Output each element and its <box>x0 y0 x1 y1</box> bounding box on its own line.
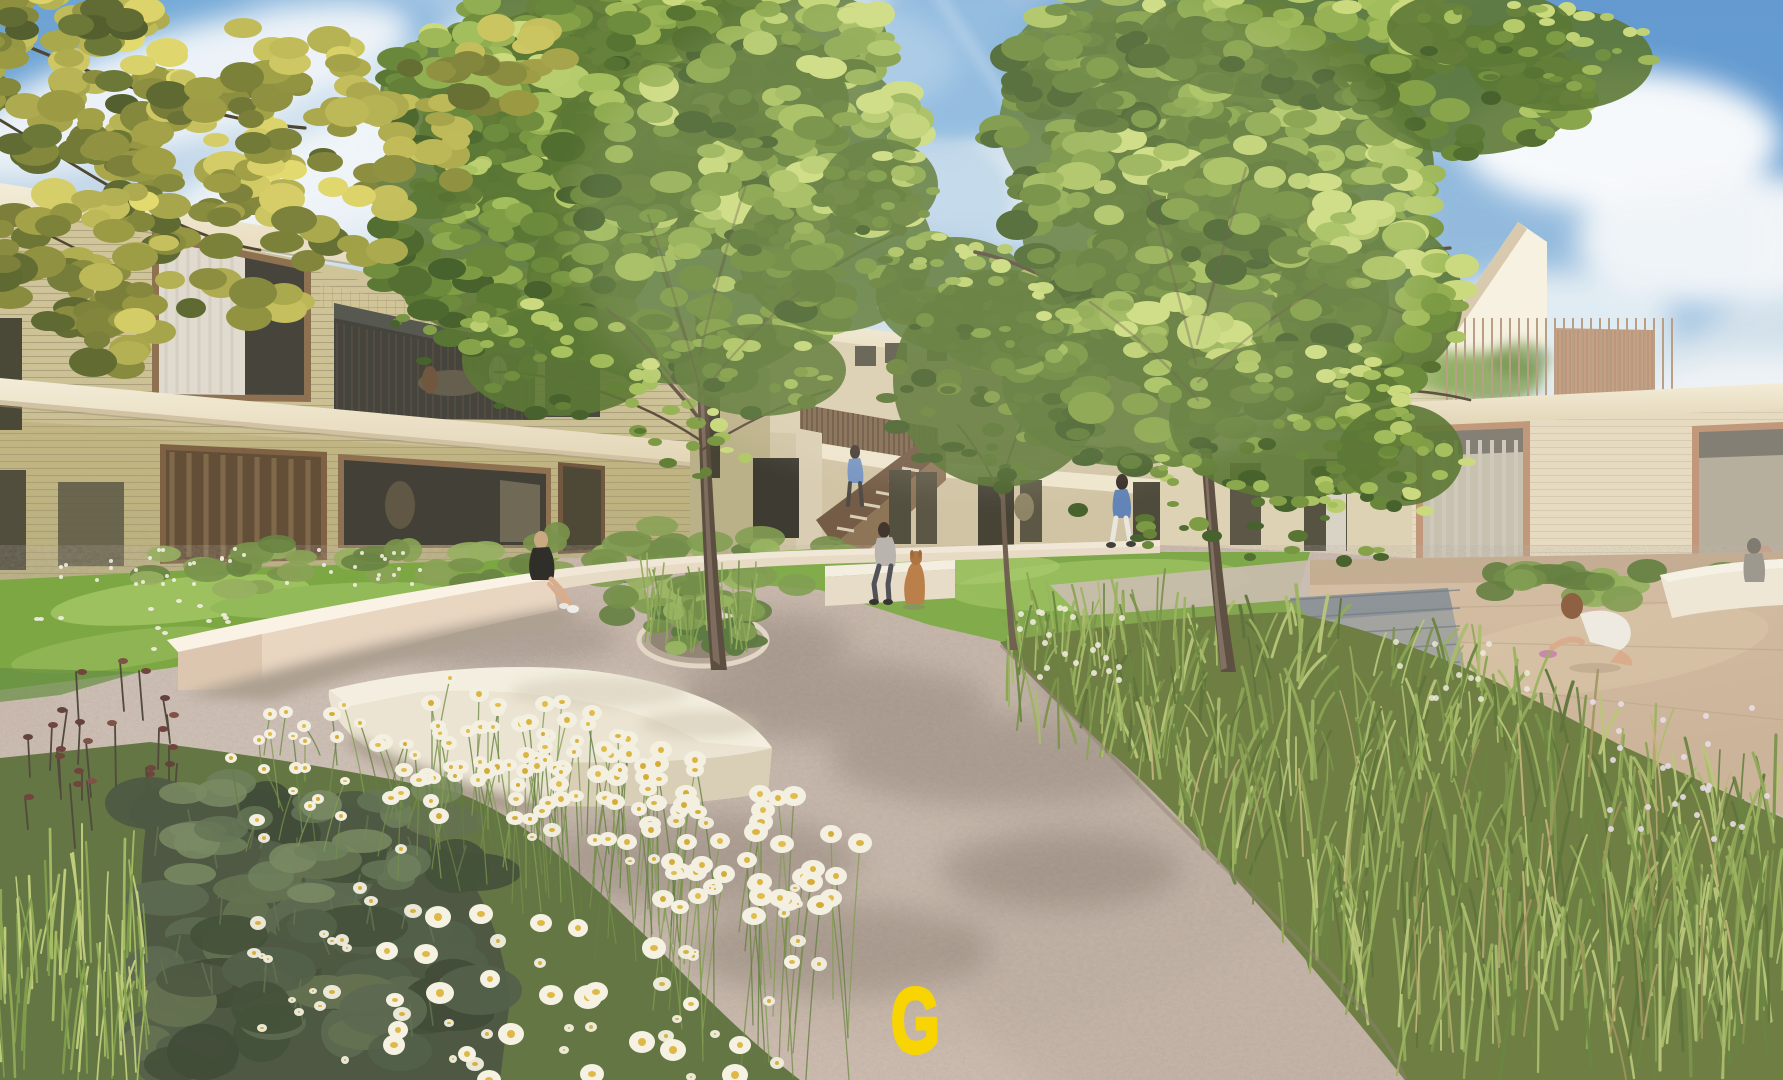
svg-text:G: G <box>891 969 940 1072</box>
